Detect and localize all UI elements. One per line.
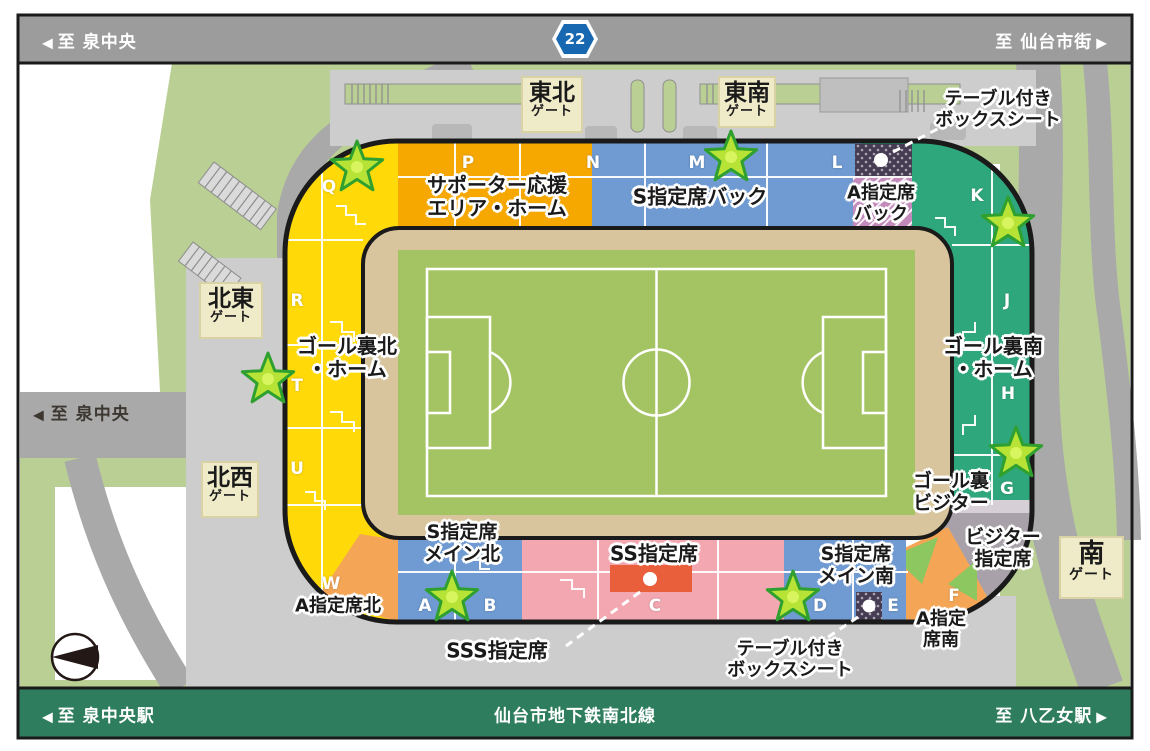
- road-label-to-izumi-chuo-left: ◀至 泉中央: [33, 400, 130, 425]
- rail-label-namboku-line: 仙台市地下鉄南北線: [494, 702, 656, 727]
- rail-label-to-izumi-chuo-sta: ◀至 泉中央駅: [38, 702, 155, 727]
- area-label-visitor-reserved: ビジター指定席: [965, 527, 1041, 571]
- area-label-goal-north-home: ゴール裏北・ホーム: [297, 335, 397, 381]
- compass-icon: [52, 634, 98, 680]
- section-letter-k: K: [970, 186, 983, 206]
- section-letter-j: J: [1004, 291, 1010, 311]
- section-letter-m: M: [689, 153, 706, 173]
- area-label-a-back: A指定席バック: [847, 183, 915, 224]
- section-letter-w: W: [322, 574, 341, 594]
- road-label-to-izumi-chuo-top: ◀至 泉中央: [38, 28, 137, 53]
- section-letter-a: A: [418, 596, 431, 616]
- area-label-a-south: A指定席南: [916, 609, 966, 650]
- box-seat-top-dot: [874, 153, 888, 167]
- rail-label-to-yaotome-sta: 至 八乙女駅▶: [995, 702, 1112, 727]
- section-letter-c: C: [649, 596, 661, 616]
- section-letter-d: D: [813, 596, 827, 616]
- section-letter-q: Q: [322, 177, 336, 197]
- section-letter-l: L: [832, 153, 843, 173]
- area-label-box-seat-bottom: テーブル付きボックスシート: [727, 639, 852, 680]
- section-letter-f: F: [948, 586, 960, 606]
- gate-hokusei: 北西ゲート: [201, 461, 259, 518]
- gate-minami: 南ゲート: [1059, 536, 1124, 599]
- gate-hokuto: 北東ゲート: [199, 282, 263, 339]
- section-letter-h: H: [1001, 384, 1015, 404]
- left-arrow-icon: ◀: [42, 710, 54, 726]
- area-label-s-main-north: S指定席メイン北: [424, 522, 500, 566]
- area-label-box-seat-top: テーブル付きボックスシート: [935, 89, 1060, 130]
- right-arrow-icon: ▶: [1096, 36, 1108, 52]
- section-letter-b: B: [484, 596, 497, 616]
- area-label-s-back: S指定席バック: [633, 186, 767, 209]
- gate-tonan: 東南ゲート: [718, 76, 776, 128]
- section-letter-n: N: [586, 153, 600, 173]
- area-label-ss-reserved: SS指定席: [610, 543, 698, 566]
- section-letter-e: E: [887, 596, 899, 616]
- section-letter-g: G: [1000, 479, 1014, 499]
- section-letter-p: P: [462, 153, 474, 173]
- right-arrow-icon: ▶: [1096, 710, 1108, 726]
- stadium-seat-map: ◀至 泉中央 22 至 仙台市街▶ ◀至 泉中央 ◀至 泉中央駅 仙台市地下鉄南…: [0, 0, 1150, 751]
- section-letter-u: U: [290, 459, 304, 479]
- section-letter-r: R: [290, 291, 303, 311]
- area-label-a-north: A指定席北: [295, 597, 381, 618]
- area-label-goal-visitor: ゴール裏ビジター: [913, 471, 989, 515]
- gate-tohoku: 東北ゲート: [521, 76, 583, 133]
- left-arrow-icon: ◀: [33, 408, 45, 424]
- left-arrow-icon: ◀: [42, 36, 54, 52]
- area-label-goal-south-home: ゴール裏南・ホーム: [943, 335, 1043, 381]
- area-label-sss-reserved: SSS指定席: [446, 640, 547, 663]
- area-label-s-main-south: S指定席メイン南: [818, 544, 894, 588]
- box-seat-bottom-dot: [863, 600, 876, 613]
- area-label-supporter-home: サポーター応援エリア・ホーム: [427, 174, 567, 220]
- route-number: 22: [565, 30, 586, 48]
- road-label-to-sendai-city: 至 仙台市街▶: [995, 28, 1112, 53]
- sss-dot: [643, 572, 657, 586]
